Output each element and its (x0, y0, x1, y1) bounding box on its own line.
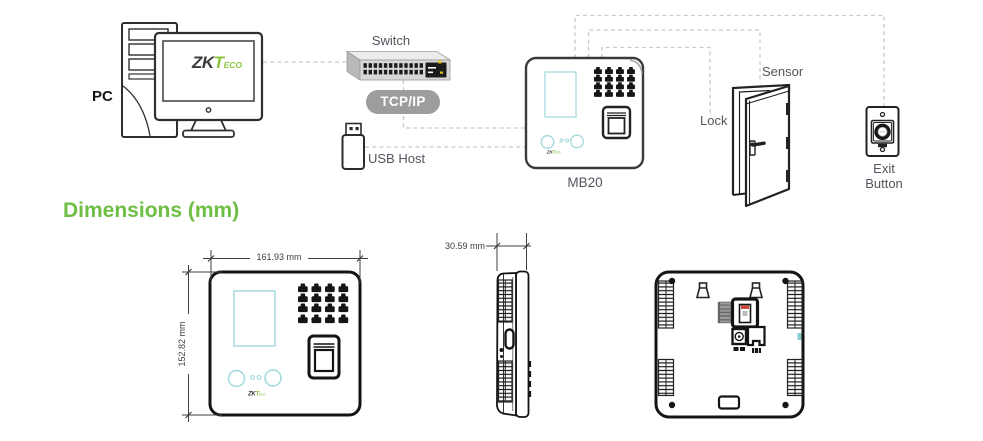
switch-label: Switch (366, 34, 416, 49)
exit-button-icon (867, 107, 899, 156)
zkteco-logo-mb20: ZKTECO (547, 149, 560, 155)
back-bottom-slot (719, 397, 739, 409)
exit-button-label: Exit Button (860, 162, 908, 192)
side-depth-dimension: 30.59 mm (441, 241, 485, 251)
mb20-screen (545, 72, 576, 117)
logo-t: T (214, 53, 224, 72)
logo-eco: ECO (555, 152, 560, 154)
pc-icon (122, 23, 262, 137)
door-icon (733, 85, 790, 206)
side-fingerprint-bump (506, 330, 514, 349)
zkteco-logo-monitor: ZKTECO (172, 53, 262, 73)
front-width-dimension: 161.93 mm (250, 252, 308, 262)
mb20-device-icon (526, 58, 643, 168)
back-side-marker (798, 333, 802, 340)
datasheet-diagram-page: PC Switch TCP/IP USB Host MB20 Lock Sens… (0, 0, 983, 441)
mb20-label: MB20 (559, 175, 611, 191)
dim-back-view (656, 272, 803, 417)
door-hinges (786, 103, 790, 182)
exit-button-label-line2: Button (860, 177, 908, 192)
pc-label: PC (92, 88, 113, 105)
zkteco-logo-front-view: ZKTECO (248, 390, 264, 397)
usb-stick-icon (343, 124, 365, 170)
lock-label: Lock (700, 114, 727, 129)
sensor-label: Sensor (762, 65, 803, 80)
logo-zk: ZK (192, 53, 214, 72)
back-terminal-block (718, 302, 731, 323)
logo-zk: ZK (248, 390, 256, 397)
front-screen (234, 291, 275, 346)
dim-side-view (486, 233, 531, 417)
usb-host-label: USB Host (368, 152, 425, 167)
dim-front-view (182, 250, 368, 422)
dimensions-title: Dimensions (mm) (63, 199, 239, 223)
exit-button-label-line1: Exit (860, 162, 908, 177)
side-dimension-lines (486, 233, 531, 271)
tcpip-badge: TCP/IP (366, 90, 440, 114)
switch-icon (347, 52, 450, 81)
front-height-dimension: 152.82 mm (177, 314, 189, 374)
logo-eco: ECO (224, 60, 242, 70)
logo-eco: ECO (259, 394, 266, 397)
back-usb-port (733, 299, 758, 327)
